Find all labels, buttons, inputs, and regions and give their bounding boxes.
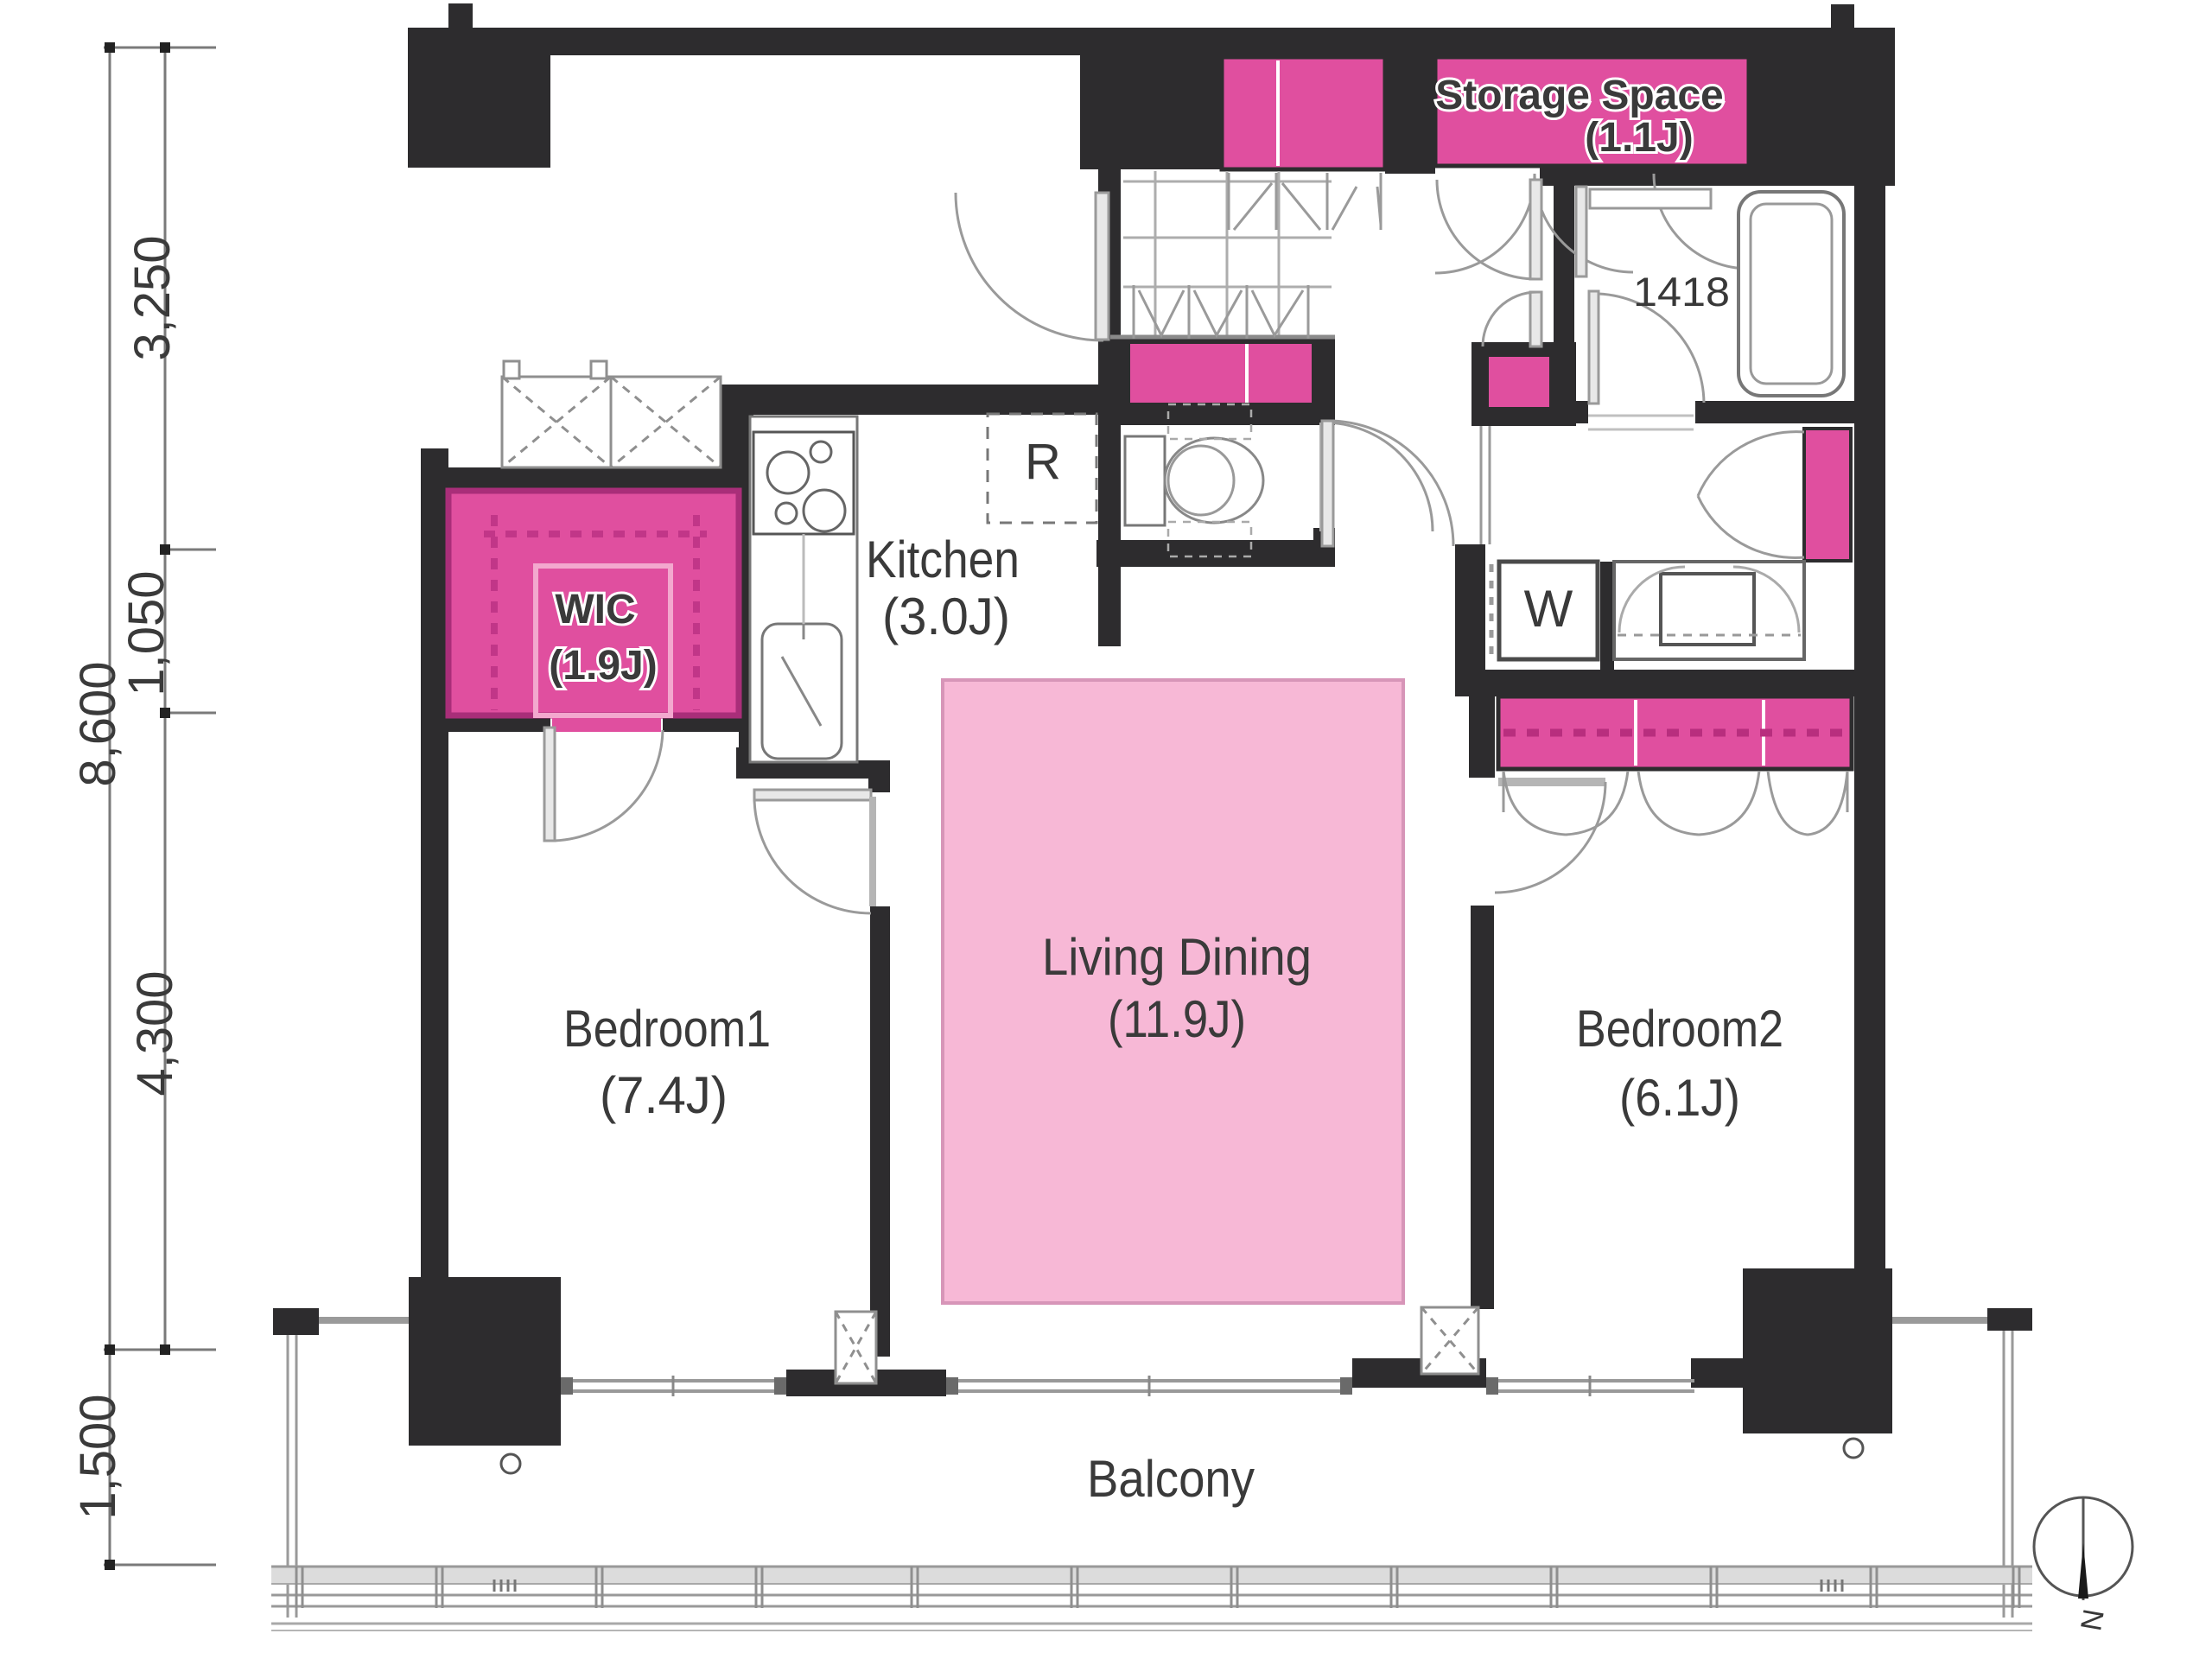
svg-text:Bedroom2: Bedroom2	[1576, 1000, 1783, 1058]
svg-text:1,500: 1,500	[70, 1394, 126, 1519]
svg-text:Bedroom1: Bedroom1	[563, 1000, 771, 1058]
svg-text:4,300: 4,300	[127, 970, 183, 1096]
svg-text:(1.9J): (1.9J)	[549, 643, 657, 689]
svg-text:Storage Space: Storage Space	[1435, 73, 1723, 118]
svg-text:8,600: 8,600	[70, 661, 126, 786]
svg-text:1,050: 1,050	[118, 570, 175, 696]
svg-text:W: W	[1524, 580, 1573, 638]
svg-text:(11.9J): (11.9J)	[1108, 990, 1246, 1048]
svg-text:(6.1J): (6.1J)	[1619, 1069, 1740, 1127]
svg-text:Living Dining: Living Dining	[1042, 928, 1312, 986]
svg-text:(7.4J): (7.4J)	[600, 1066, 728, 1124]
svg-text:Balcony: Balcony	[1087, 1450, 1255, 1508]
svg-text:WIC: WIC	[555, 587, 635, 632]
svg-text:3,250: 3,250	[124, 235, 181, 360]
svg-text:(1.1J): (1.1J)	[1585, 115, 1693, 161]
svg-text:(3.0J): (3.0J)	[882, 588, 1010, 645]
svg-text:Kitchen: Kitchen	[866, 531, 1020, 588]
svg-text:R: R	[1025, 434, 1061, 490]
svg-text:1418: 1418	[1633, 269, 1730, 315]
